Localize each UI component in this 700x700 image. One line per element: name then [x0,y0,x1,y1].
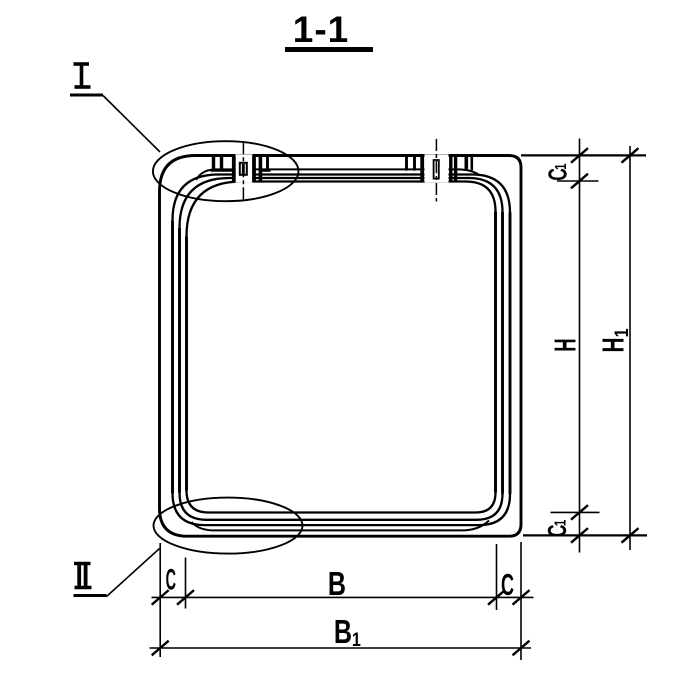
svg-text:B: B [334,614,352,651]
svg-text:H: H [549,338,583,351]
svg-text:C: C [166,563,176,596]
svg-text:1-1: 1-1 [293,9,349,50]
svg-text:B: B [328,566,346,603]
svg-text:1: 1 [552,519,569,526]
svg-text:C: C [501,568,514,602]
svg-text:1: 1 [611,328,633,337]
svg-text:1: 1 [352,629,361,651]
svg-text:1: 1 [553,163,570,170]
svg-text:H: H [595,338,630,353]
